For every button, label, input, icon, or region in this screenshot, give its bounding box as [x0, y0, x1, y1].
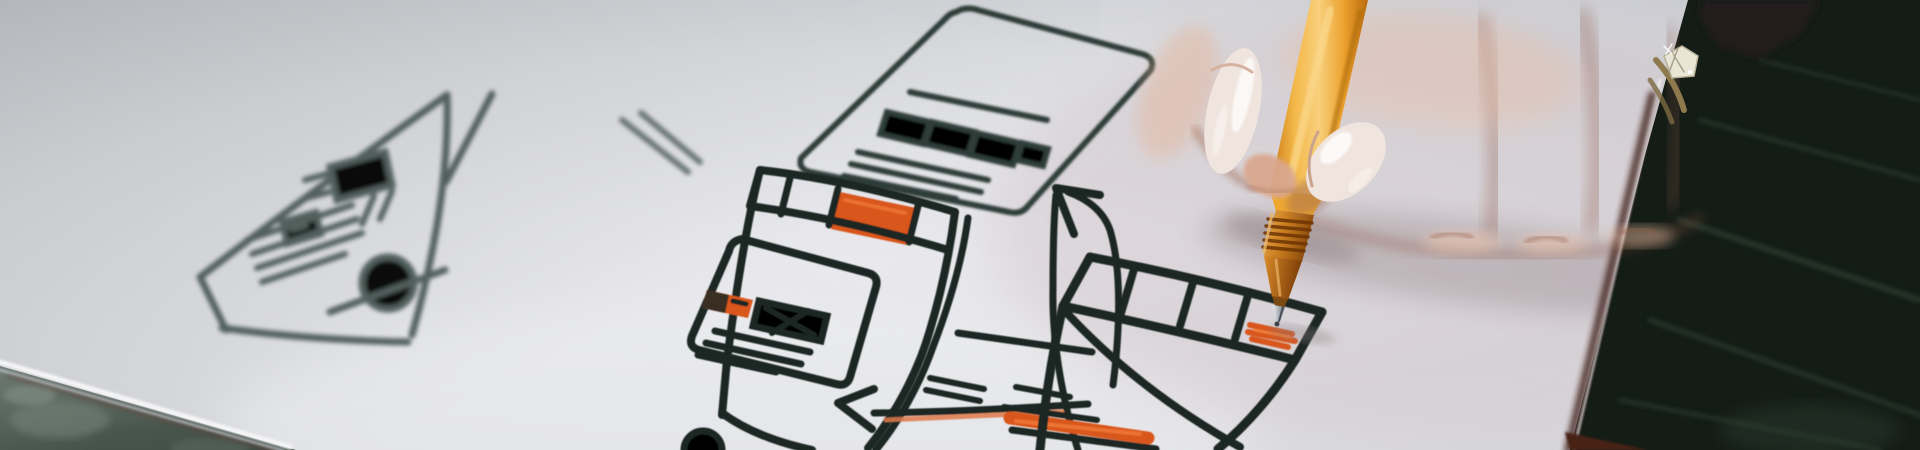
photo-scene: [0, 0, 1920, 450]
image-chip-stroke: [733, 301, 746, 304]
thumbnail-box: [1017, 143, 1048, 166]
bottom-nav-circle: [684, 431, 722, 450]
diamond-sparkle: [1688, 70, 1692, 74]
desk-mottle: [10, 402, 110, 438]
ballpoint: [1275, 322, 1280, 327]
photo-canvas: [0, 0, 1920, 450]
